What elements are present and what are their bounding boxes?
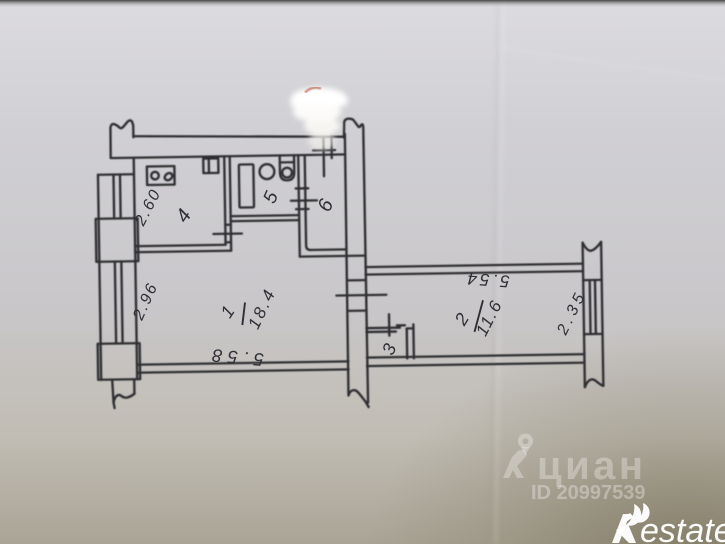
svg-text:ID 20997539: ID 20997539 <box>531 482 646 504</box>
svg-text:5.54: 5.54 <box>464 269 510 291</box>
svg-text:estate: estate <box>640 512 725 544</box>
